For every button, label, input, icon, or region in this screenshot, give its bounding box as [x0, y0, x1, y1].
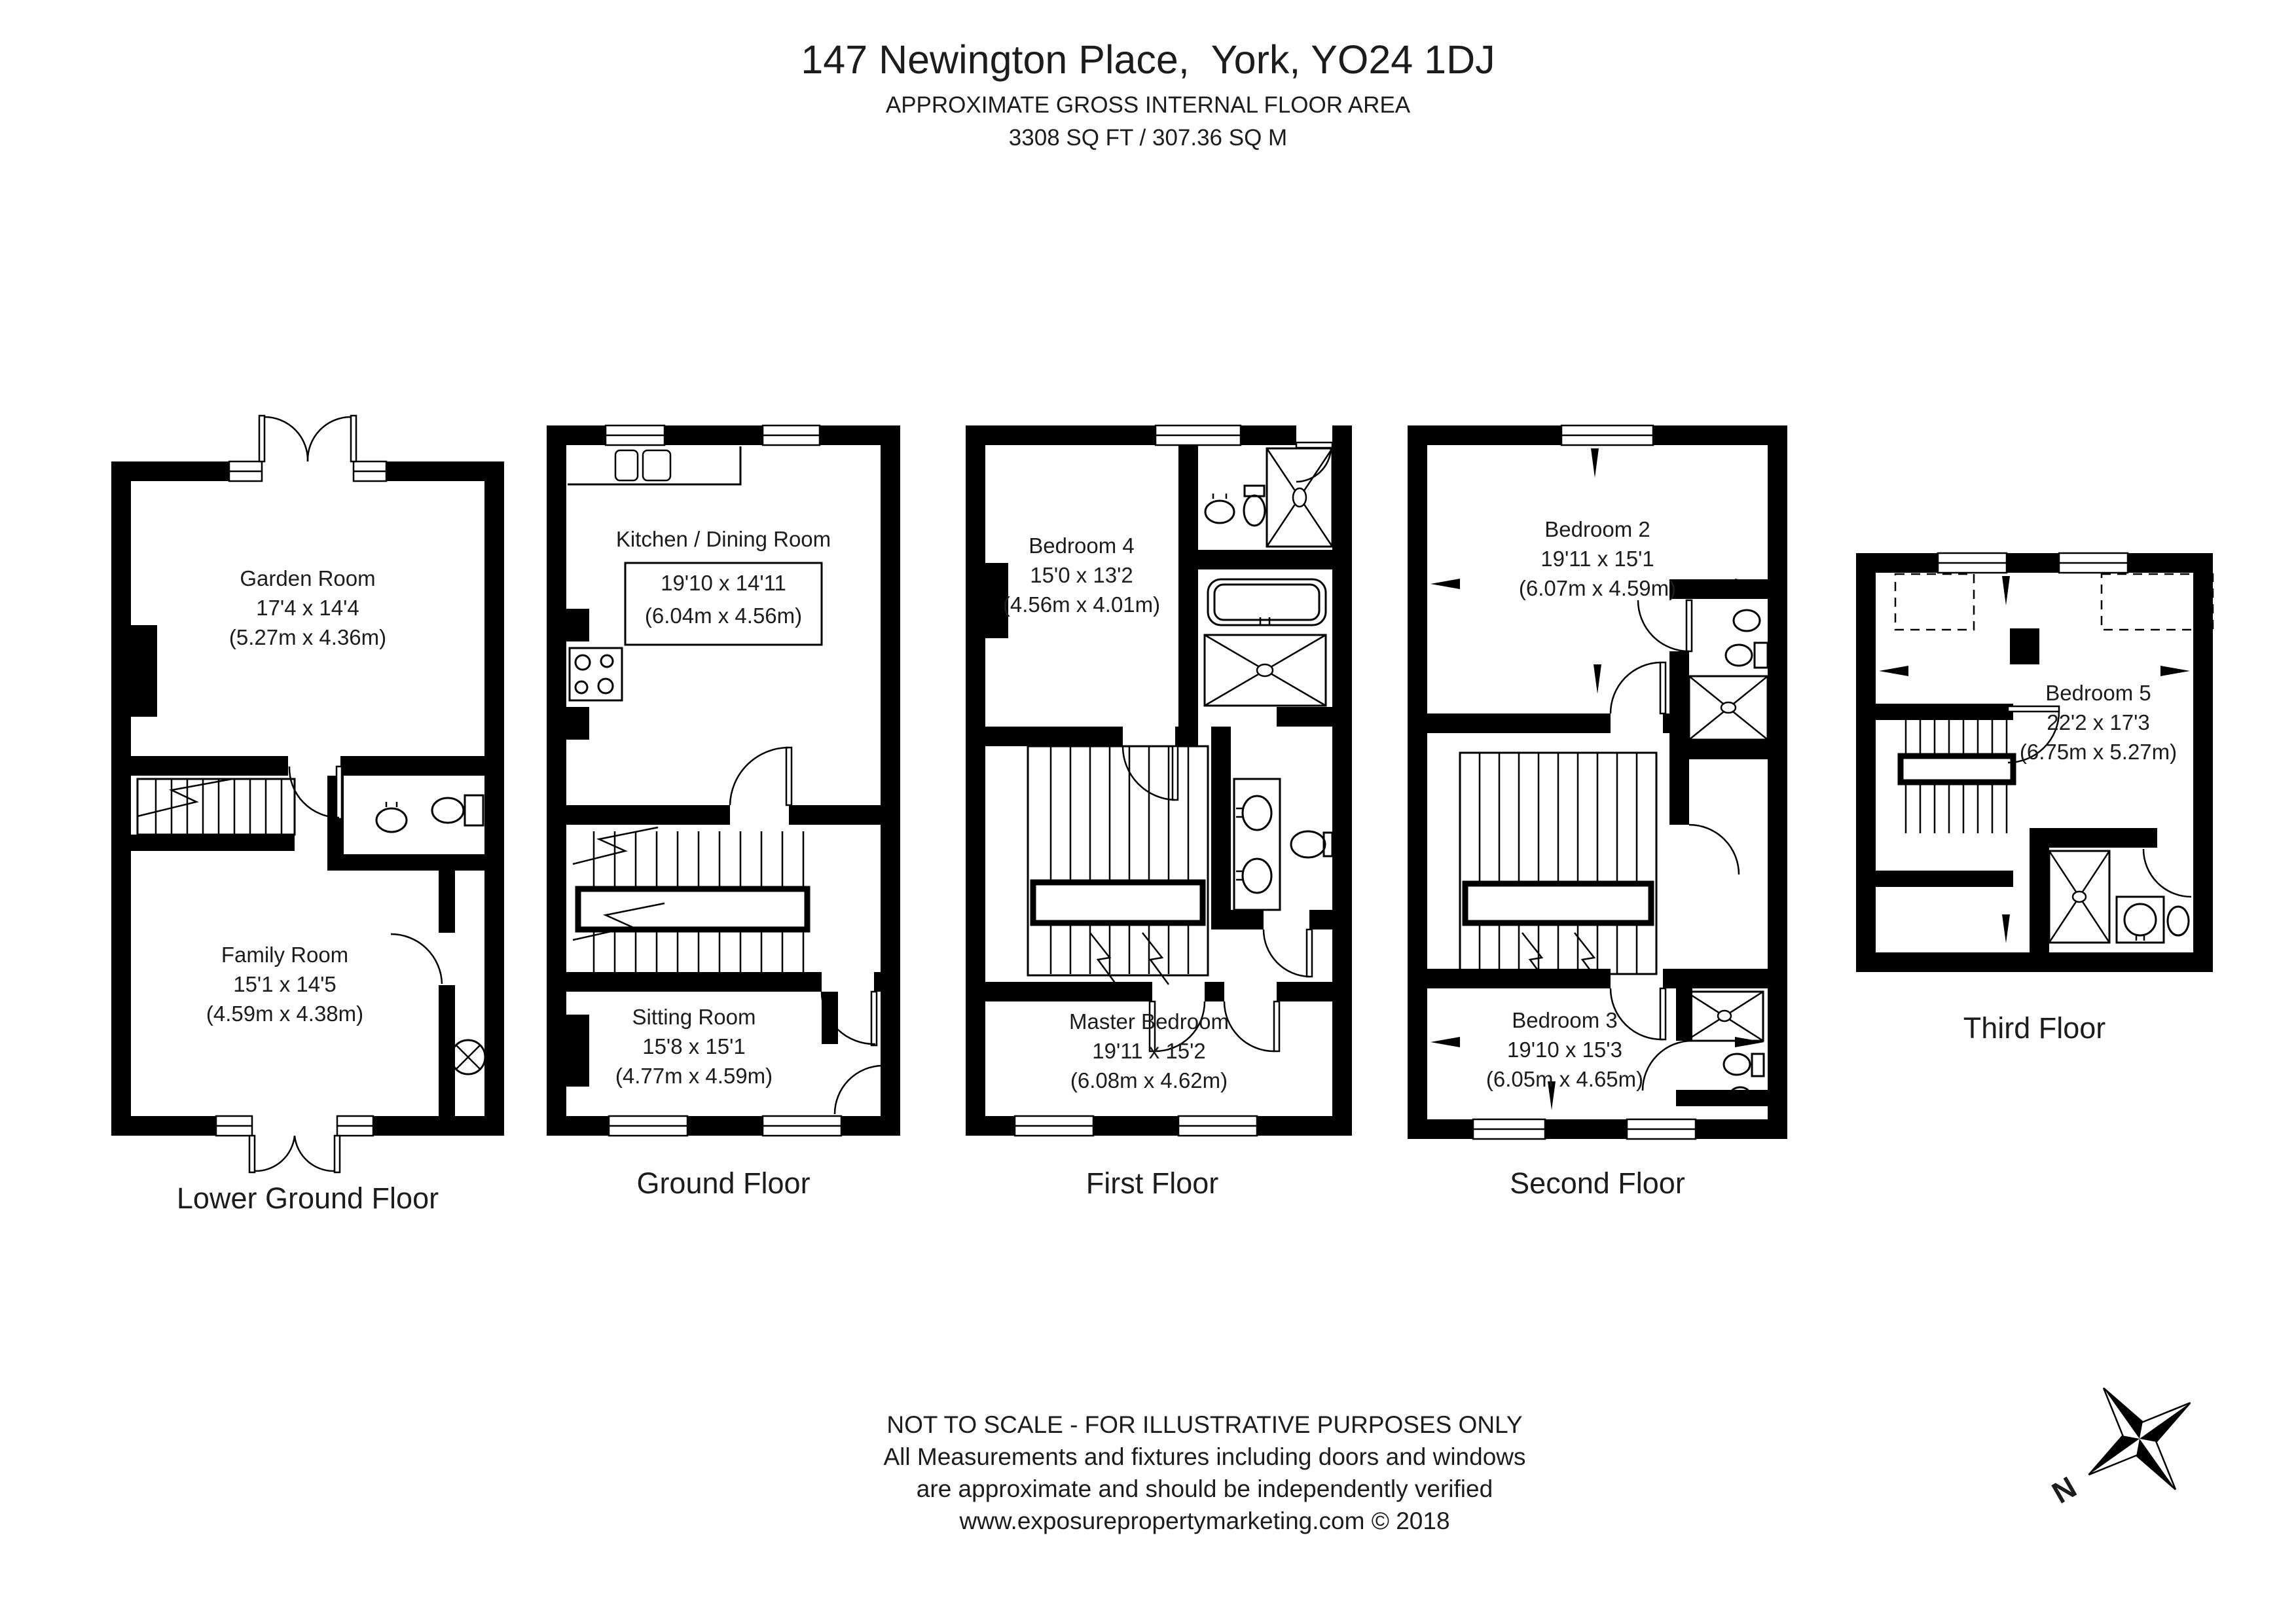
header: 147 Newington Place, York, YO24 1DJ APPR…	[0, 37, 2296, 152]
floorplan-second: Bedroom 2 19'11 x 15'1 (6.07m x 4.59m) B…	[1394, 412, 1800, 1159]
disclaimer-line-3: are approximate and should be independen…	[498, 1473, 1912, 1505]
header-subtitle: APPROXIMATE GROSS INTERNAL FLOOR AREA	[0, 92, 2296, 119]
room-label-bedroom-3: Bedroom 3 19'10 x 15'3 (6.05m x 4.65m)	[1486, 1008, 1643, 1091]
floor-label-first: First Floor	[953, 1166, 1352, 1200]
room-dim-imperial: 17'4 x 14'4	[256, 596, 359, 620]
vanity-unit	[1234, 779, 1280, 910]
ensuite-bedroom2-fixtures	[1689, 610, 1768, 740]
arrow-right-icon	[2160, 666, 2190, 676]
room-name: Kitchen / Dining Room	[616, 527, 831, 551]
floorplan-lower-ground: Garden Room 17'4 x 14'4 (5.27m x 4.36m) …	[98, 403, 517, 1175]
chimney-block	[2010, 628, 2039, 664]
toilet-icon	[465, 795, 483, 825]
compass-north-label: N	[2048, 1470, 2082, 1510]
toilet-bowl-icon	[1724, 1054, 1750, 1075]
arrow-down-icon	[2002, 914, 2010, 943]
room-label-sitting-room: Sitting Room 15'8 x 15'1 (4.77m x 4.59m)	[615, 1005, 773, 1088]
room-name: Bedroom 4	[1029, 533, 1134, 558]
disclaimer-line-2: All Measurements and fixtures including …	[498, 1441, 1912, 1473]
toilet-bowl-icon	[1726, 645, 1752, 666]
room-name: Bedroom 2	[1544, 517, 1650, 541]
basin-icon	[376, 808, 407, 832]
extractor-icon	[451, 1040, 485, 1074]
room-dim-imperial: 19'10 x 15'3	[1507, 1038, 1622, 1062]
arrow-down-icon	[1591, 448, 1599, 478]
room-label-kitchen-dining: Kitchen / Dining Room 19'10 x 14'11 (6.0…	[616, 527, 831, 628]
room-dim-metric: (6.08m x 4.62m)	[1070, 1068, 1228, 1092]
basin-icon	[2124, 904, 2156, 935]
room-dim-imperial: 15'0 x 13'2	[1030, 563, 1133, 587]
disclaimer: NOT TO SCALE - FOR ILLUSTRATIVE PURPOSES…	[498, 1409, 1912, 1537]
shower-icon	[1689, 676, 1768, 740]
arrow-left-icon	[1879, 666, 1908, 676]
room-label-bedroom-5: Bedroom 5 22'2 x 17'3 (6.75m x 5.27m)	[2020, 681, 2177, 764]
room-label-bedroom-4: Bedroom 4 15'0 x 13'2 (4.56m x 4.01m)	[1003, 533, 1160, 617]
stairs	[1028, 746, 1208, 984]
toilet-bowl-icon	[1291, 831, 1325, 857]
toilet-icon	[1752, 1054, 1764, 1076]
disclaimer-line-4: www.exposurepropertymarketing.com © 2018	[498, 1505, 1912, 1537]
room-name: Bedroom 5	[2045, 681, 2151, 705]
room-name: Garden Room	[240, 566, 375, 590]
room-dim-metric: (6.75m x 5.27m)	[2020, 740, 2177, 764]
arrow-down-icon	[1594, 664, 1601, 694]
arrow-left-icon	[1430, 579, 1460, 589]
room-dim-imperial: 19'10 x 14'11	[661, 571, 786, 595]
toilet-bowl-icon	[432, 798, 464, 823]
reduced-headroom-dashes	[1895, 574, 2213, 630]
room-dim-metric: (4.56m x 4.01m)	[1003, 592, 1160, 617]
ensuite-bedroom3-fixtures	[1686, 992, 1764, 1104]
room-label-master-bedroom: Master Bedroom 19'11 x 15'2 (6.08m x 4.6…	[1069, 1009, 1229, 1092]
floorplan-third: Bedroom 5 22'2 x 17'3 (6.75m x 5.27m)	[1843, 540, 2226, 992]
floor-label-lower-ground: Lower Ground Floor	[98, 1182, 517, 1216]
room-dim-imperial: 15'8 x 15'1	[642, 1034, 746, 1058]
room-label-family-room: Family Room 15'1 x 14'5 (4.59m x 4.38m)	[206, 943, 363, 1026]
room-dim-imperial: 19'11 x 15'1	[1540, 547, 1654, 571]
room-dim-metric: (5.27m x 4.36m)	[229, 625, 386, 649]
compass-rose-icon: N	[2048, 1354, 2231, 1537]
toilet-bowl-icon	[2168, 907, 2189, 935]
bath-icon	[1208, 579, 1326, 625]
sink-icon	[615, 450, 638, 480]
room-name: Master Bedroom	[1069, 1009, 1229, 1034]
room-dim-metric: (4.59m x 4.38m)	[206, 1001, 363, 1026]
room-name: Family Room	[221, 943, 348, 967]
stairs	[1460, 753, 1656, 984]
hob-icon	[570, 648, 622, 700]
arrow-left-icon	[1430, 1037, 1460, 1047]
stairs	[573, 827, 807, 973]
floor-label-ground: Ground Floor	[534, 1166, 913, 1200]
room-name: Sitting Room	[632, 1005, 756, 1029]
floorplan-first: Bedroom 4 15'0 x 13'2 (4.56m x 4.01m) Ma…	[953, 412, 1352, 1155]
shower-icon	[1267, 448, 1332, 547]
room-dim-imperial: 19'11 x 15'2	[1092, 1039, 1205, 1063]
room-dim-metric: (6.07m x 4.59m)	[1519, 576, 1676, 600]
basin-icon	[1243, 796, 1271, 830]
toilet-icon	[1755, 643, 1768, 668]
basin-icon	[1243, 859, 1271, 893]
room-dim-metric: (4.77m x 4.59m)	[615, 1064, 773, 1088]
disclaimer-line-1: NOT TO SCALE - FOR ILLUSTRATIVE PURPOSES…	[498, 1409, 1912, 1441]
room-label-bedroom-2: Bedroom 2 19'11 x 15'1 (6.07m x 4.59m)	[1519, 517, 1676, 600]
doors	[249, 416, 442, 1172]
stairs	[137, 779, 295, 835]
wc-fixtures	[376, 795, 483, 832]
floor-label-second: Second Floor	[1394, 1166, 1800, 1200]
toilet-bowl-icon	[1244, 496, 1265, 526]
room-dim-metric: (6.05m x 4.65m)	[1486, 1067, 1643, 1091]
ensuite-fixtures	[2049, 851, 2189, 943]
basin-icon	[1734, 610, 1760, 631]
room-label-garden-room: Garden Room 17'4 x 14'4 (5.27m x 4.36m)	[229, 566, 386, 649]
arrow-down-icon	[2002, 576, 2010, 605]
stairs	[1901, 710, 2013, 833]
shower-icon	[2049, 851, 2109, 943]
basin-icon	[1205, 501, 1234, 523]
floorplan-ground: Kitchen / Dining Room 19'10 x 14'11 (6.0…	[534, 412, 913, 1155]
sink-icon	[643, 450, 670, 480]
shower-icon	[1686, 992, 1763, 1041]
room-name: Bedroom 3	[1512, 1008, 1617, 1032]
shower-icon	[1205, 635, 1326, 706]
floor-label-third: Third Floor	[1843, 1011, 2226, 1045]
page-title: 147 Newington Place, York, YO24 1DJ	[0, 37, 2296, 82]
room-dim-imperial: 22'2 x 17'3	[2047, 710, 2150, 734]
windows	[216, 461, 386, 1136]
room-dim-imperial: 15'1 x 14'5	[233, 972, 337, 996]
header-area: 3308 SQ FT / 307.36 SQ M	[0, 124, 2296, 152]
bathroom-top-fixtures	[1205, 448, 1332, 547]
room-dim-metric: (6.04m x 4.56m)	[645, 604, 802, 628]
